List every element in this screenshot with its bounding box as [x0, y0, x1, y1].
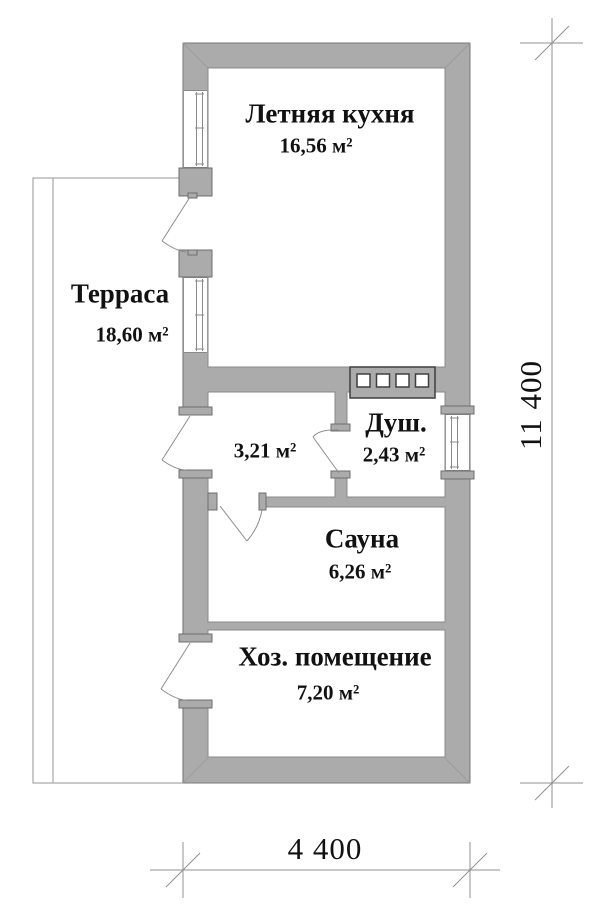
- terrace-outline: [33, 178, 183, 783]
- sauna-door-opening: [217, 494, 262, 509]
- terrace-name-label: Терраса: [71, 279, 169, 310]
- kitchen-area-label: 16,56 м²: [279, 134, 352, 159]
- shower-name-label: Душ.: [365, 408, 427, 439]
- kitchen-name-label: Летняя кухня: [245, 99, 414, 130]
- horizontal-dimension-label: 4 400: [288, 831, 363, 867]
- terrace-area-label: 18,60 м²: [95, 323, 168, 348]
- stove-icon: [350, 367, 435, 398]
- hallway-area-label: 3,21 м²: [234, 439, 297, 464]
- floor-plan: Летняя кухня 16,56 м² Терраса 18,60 м² 3…: [0, 0, 600, 910]
- sauna-area-label: 6,26 м²: [329, 560, 392, 585]
- vertical-dimension-label: 11 400: [513, 360, 549, 450]
- hallway-door-opening: [182, 415, 209, 470]
- shower-area-label: 2,43 м²: [363, 443, 426, 468]
- utility-door-opening: [182, 642, 209, 700]
- sauna-name-label: Сауна: [325, 524, 399, 555]
- kitchen-window-upper: [184, 90, 207, 168]
- utility-area-label: 7,20 м²: [297, 681, 360, 706]
- kitchen-window-lower: [184, 277, 207, 353]
- utility-name-label: Хоз. помещение: [238, 642, 431, 673]
- shower-window: [446, 414, 469, 471]
